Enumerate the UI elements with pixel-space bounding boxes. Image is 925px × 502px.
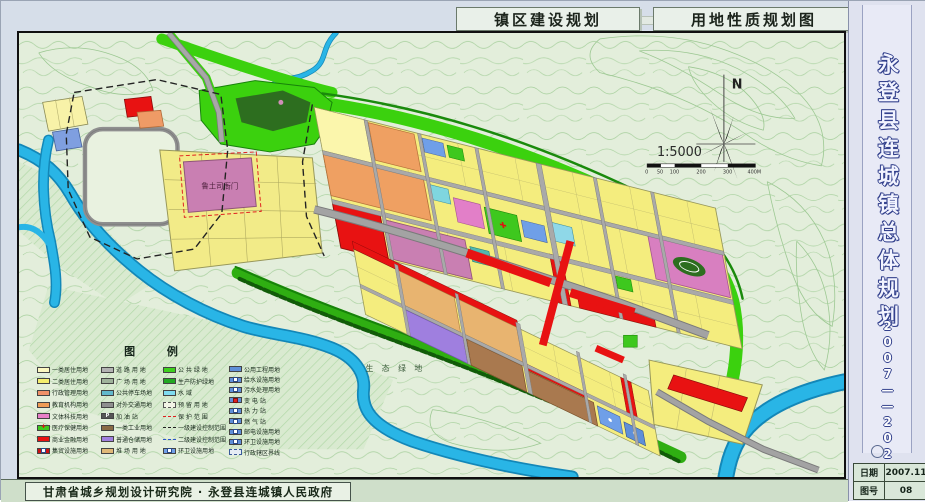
legend-swatch bbox=[229, 449, 242, 455]
legend-swatch bbox=[163, 439, 176, 440]
legend-item: 道 路 用 地 bbox=[101, 364, 152, 376]
meta-row-date: 日期 2007.11 bbox=[854, 464, 925, 482]
scale-text: 1:5000 bbox=[657, 145, 702, 160]
legend: 图 例 一类居住用地二类居住用地行政管理用地教育机构用地文体科技用地✚医疗保健用… bbox=[35, 343, 315, 465]
legend-label: 对外交通用地 bbox=[116, 400, 152, 409]
svg-text:50: 50 bbox=[657, 170, 663, 176]
legend-label: 生产防护绿地 bbox=[178, 377, 214, 386]
legend-column: 道 路 用 地广 场 用 地公共停车场地对外交通用地P加 油 站一类工业用地普通… bbox=[101, 364, 152, 457]
north-label: N bbox=[732, 77, 743, 92]
legend-item: 教育机构用地 bbox=[37, 399, 88, 411]
sidebar-title: 永登县连城镇总体规划 bbox=[873, 53, 903, 333]
legend-item: 普通仓储用地 bbox=[101, 434, 152, 446]
legend-title: 图 例 bbox=[93, 343, 223, 359]
legend-label: 给水设施用地 bbox=[244, 375, 280, 384]
legend-label: 环卫设施用地 bbox=[178, 446, 214, 455]
legend-item: 热 力 站 bbox=[229, 406, 280, 416]
legend-swatch bbox=[229, 397, 242, 403]
footer-credit: 甘肃省城乡规划设计研究院 · 永登县连城镇人民政府 bbox=[25, 482, 351, 501]
legend-swatch bbox=[229, 418, 242, 424]
legend-item: 一级建设控制范围 bbox=[163, 422, 226, 434]
legend-label: 热 力 站 bbox=[244, 406, 266, 415]
legend-label: 商业金融用地 bbox=[52, 435, 88, 444]
legend-swatch bbox=[37, 413, 50, 419]
legend-swatch: ✚ bbox=[37, 425, 50, 431]
legend-item: 一类工业用地 bbox=[101, 422, 152, 434]
legend-item: 公 共 绿 地 bbox=[163, 364, 226, 376]
svg-text:300: 300 bbox=[723, 170, 732, 176]
legend-swatch bbox=[101, 402, 114, 408]
legend-item: 保 护 范 围 bbox=[163, 410, 226, 422]
legend-column: 公 共 绿 地生产防护绿地水 域预 留 用 地保 护 范 围一级建设控制范围二级… bbox=[163, 364, 226, 457]
legend-label: 一级建设控制范围 bbox=[178, 423, 226, 432]
legend-label: 行政辖区界线 bbox=[244, 448, 280, 457]
legend-item: 行政辖区界线 bbox=[229, 447, 280, 457]
svg-text:100: 100 bbox=[670, 170, 679, 176]
legend-item: 污水处理用地 bbox=[229, 385, 280, 395]
meta-sheet-label: 图号 bbox=[854, 482, 885, 499]
legend-swatch bbox=[229, 377, 242, 383]
legend-item: 文体科技用地 bbox=[37, 410, 88, 422]
legend-item: 堆 场 用 地 bbox=[101, 445, 152, 457]
meta-row-sheet: 图号 08 bbox=[854, 482, 925, 499]
footer: 甘肃省城乡规划设计研究院 · 永登县连城镇人民政府 bbox=[1, 479, 848, 502]
legend-swatch bbox=[163, 367, 176, 373]
legend-item: 生产防护绿地 bbox=[163, 376, 226, 388]
meta-sheet-value: 08 bbox=[885, 482, 925, 499]
legend-swatch bbox=[37, 378, 50, 384]
legend-label: 医疗保健用地 bbox=[52, 423, 88, 432]
legend-label: 文体科技用地 bbox=[52, 412, 88, 421]
meta-date-label: 日期 bbox=[854, 464, 885, 481]
legend-item: 一类居住用地 bbox=[37, 364, 88, 376]
legend-item: 二类居住用地 bbox=[37, 376, 88, 388]
legend-label: 环卫设施用地 bbox=[244, 437, 280, 446]
legend-swatch bbox=[163, 402, 176, 408]
legend-item: 环卫设施用地 bbox=[163, 445, 226, 457]
legend-item: 广 场 用 地 bbox=[101, 376, 152, 388]
legend-label: 公用工程用地 bbox=[244, 365, 280, 374]
legend-item: 预 留 用 地 bbox=[163, 399, 226, 411]
legend-column: 一类居住用地二类居住用地行政管理用地教育机构用地文体科技用地✚医疗保健用地商业金… bbox=[37, 364, 88, 457]
legend-item: 集贸设施用地 bbox=[37, 445, 88, 457]
legend-swatch bbox=[37, 390, 50, 396]
stamp-icon bbox=[871, 445, 884, 458]
legend-item: 水 域 bbox=[163, 387, 226, 399]
legend-item: 对外交通用地 bbox=[101, 399, 152, 411]
legend-item: 公用工程用地 bbox=[229, 364, 280, 374]
map-label-eco: 生 态 绿 地 bbox=[366, 363, 426, 373]
legend-swatch bbox=[101, 425, 114, 431]
legend-column: 公用工程用地给水设施用地污水处理用地变 电 站热 力 站燃 气 站邮电设施用地环… bbox=[229, 364, 280, 458]
legend-item: 商业金融用地 bbox=[37, 434, 88, 446]
old-town: 鲁土司衙门 bbox=[160, 150, 322, 271]
svg-text:0: 0 bbox=[645, 170, 648, 176]
legend-item: 邮电设施用地 bbox=[229, 426, 280, 436]
legend-label: 二类居住用地 bbox=[52, 377, 88, 386]
legend-label: 一类居住用地 bbox=[52, 365, 88, 374]
legend-label: 行政管理用地 bbox=[52, 388, 88, 397]
temple-dot bbox=[278, 100, 283, 105]
legend-label: 预 留 用 地 bbox=[178, 400, 208, 409]
legend-label: 堆 场 用 地 bbox=[116, 446, 146, 455]
legend-label: 水 域 bbox=[178, 388, 192, 397]
legend-label: 一类工业用地 bbox=[116, 423, 152, 432]
legend-item: 二级建设控制范围 bbox=[163, 434, 226, 446]
legend-swatch bbox=[37, 436, 50, 442]
legend-item: P加 油 站 bbox=[101, 410, 152, 422]
map-label-heritage: 鲁土司衙门 bbox=[201, 182, 238, 191]
legend-swatch bbox=[229, 387, 242, 393]
legend-label: 公共停车场地 bbox=[116, 388, 152, 397]
svg-text:200: 200 bbox=[696, 170, 705, 176]
legend-swatch bbox=[101, 367, 114, 373]
legend-swatch bbox=[101, 390, 114, 396]
legend-swatch bbox=[163, 448, 176, 454]
legend-swatch bbox=[101, 436, 114, 442]
svg-text:400M: 400M bbox=[748, 170, 762, 176]
legend-label: 二级建设控制范围 bbox=[178, 435, 226, 444]
legend-item: 给水设施用地 bbox=[229, 374, 280, 384]
legend-label: 普通仓储用地 bbox=[116, 435, 152, 444]
legend-swatch bbox=[37, 402, 50, 408]
legend-swatch bbox=[101, 378, 114, 384]
legend-swatch bbox=[229, 366, 242, 372]
legend-label: 污水处理用地 bbox=[244, 385, 280, 394]
plan-sheet: 镇区建设规划 用地性质规划图 bbox=[0, 0, 925, 500]
legend-label: 广 场 用 地 bbox=[116, 377, 146, 386]
legend-swatch bbox=[229, 439, 242, 445]
legend-swatch bbox=[37, 367, 50, 373]
header-title-left: 镇区建设规划 bbox=[456, 7, 640, 31]
legend-label: 公 共 绿 地 bbox=[178, 365, 208, 374]
legend-item: 变 电 站 bbox=[229, 395, 280, 405]
legend-swatch bbox=[163, 416, 176, 417]
legend-label: 加 油 站 bbox=[116, 412, 138, 421]
sidebar: 永登县连城镇总体规划 2007——2020 日期 2007.11 图号 08 bbox=[848, 1, 925, 501]
meta-date-value: 2007.11 bbox=[885, 464, 925, 481]
meta-table: 日期 2007.11 图号 08 bbox=[853, 463, 925, 500]
legend-label: 邮电设施用地 bbox=[244, 427, 280, 436]
header-title-right: 用地性质规划图 bbox=[653, 7, 855, 31]
legend-label: 道 路 用 地 bbox=[116, 365, 146, 374]
legend-label: 集贸设施用地 bbox=[52, 446, 88, 455]
legend-swatch bbox=[229, 429, 242, 435]
legend-swatch bbox=[163, 390, 176, 396]
legend-swatch: P bbox=[101, 413, 114, 419]
legend-label: 教育机构用地 bbox=[52, 400, 88, 409]
legend-label: 变 电 站 bbox=[244, 396, 266, 405]
legend-item: 公共停车场地 bbox=[101, 387, 152, 399]
legend-item: ✚医疗保健用地 bbox=[37, 422, 88, 434]
legend-swatch bbox=[101, 448, 114, 454]
legend-label: 保 护 范 围 bbox=[178, 412, 208, 421]
legend-swatch bbox=[37, 448, 50, 454]
legend-item: 燃 气 站 bbox=[229, 416, 280, 426]
legend-swatch bbox=[229, 408, 242, 414]
legend-item: 行政管理用地 bbox=[37, 387, 88, 399]
legend-item: 环卫设施用地 bbox=[229, 437, 280, 447]
legend-swatch bbox=[163, 427, 176, 428]
legend-swatch bbox=[163, 378, 176, 384]
legend-label: 燃 气 站 bbox=[244, 417, 266, 426]
